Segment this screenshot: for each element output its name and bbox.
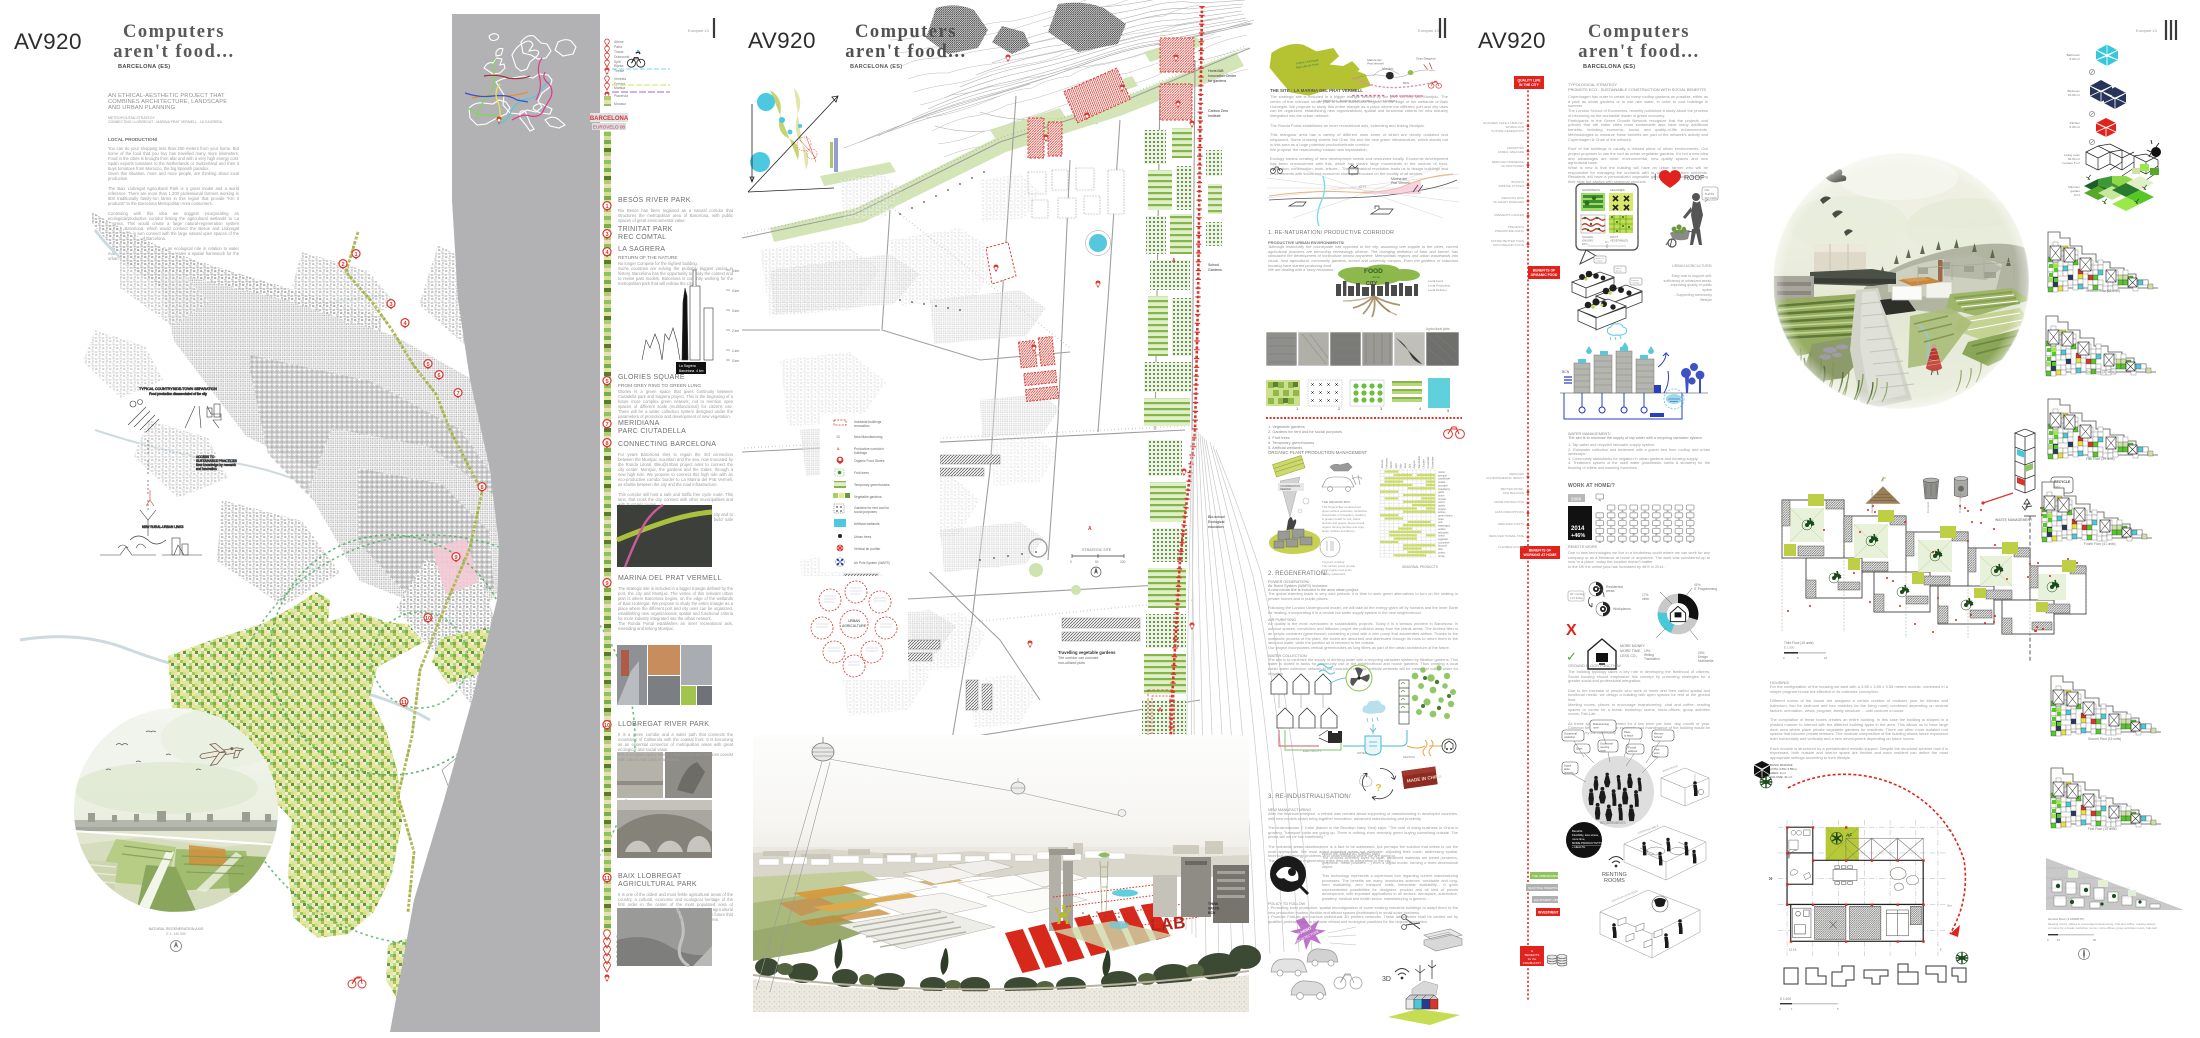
svg-text:social purposes: social purposes	[854, 510, 877, 514]
svg-text:BCN: BCN	[1562, 370, 1570, 374]
svg-text:First Floor (14 units): First Floor (14 units)	[2088, 827, 2117, 831]
svg-text:Air Puls System (WAFS): Air Puls System (WAFS)	[854, 561, 890, 565]
svg-text:HortsVAB: HortsVAB	[1208, 69, 1224, 73]
svg-text:5: 5	[1447, 408, 1450, 413]
svg-text:10: 10	[2057, 938, 2061, 942]
svg-text:50: 50	[1095, 560, 1099, 564]
svg-text:5: 5	[1797, 656, 1799, 660]
svg-text:ROOF: ROOF	[1684, 175, 1704, 182]
svg-text:0: 0	[1783, 656, 1785, 660]
svg-text:Artificial wetlands: Artificial wetlands	[854, 522, 880, 526]
svg-text:water 2x: water 2x	[1596, 257, 1605, 260]
svg-text:February: February	[1385, 457, 1389, 468]
svg-text:Formal: Formal	[1628, 746, 1636, 750]
svg-text:I: I	[1654, 172, 1657, 182]
svg-text:Agricultural plots: Agricultural plots	[1426, 327, 1450, 331]
svg-text:4: 4	[1419, 406, 1422, 411]
svg-text:4 km: 4 km	[732, 289, 739, 293]
svg-text:10: 10	[1824, 656, 1828, 660]
svg-text:OF PESTICIDES: OF PESTICIDES	[1501, 164, 1524, 168]
svg-text:REDUCED TRAVEL TIME: REDUCED TRAVEL TIME	[1489, 534, 1524, 538]
svg-text:0: 0	[1779, 1007, 1781, 1011]
svg-text:URBAN: URBAN	[848, 619, 860, 623]
svg-text:2m: 2m	[1605, 240, 1609, 244]
svg-text:ELECTRICITY: ELECTRICITY	[1303, 749, 1321, 753]
svg-text:OF HEART DISEASES: OF HEART DISEASES	[1493, 200, 1524, 204]
svg-text:CITY: CITY	[1359, 185, 1367, 189]
svg-text:STRATEGIC SITE: STRATEGIC SITE	[1082, 548, 1112, 552]
svg-text:Gardens: Gardens	[1208, 268, 1222, 272]
svg-text:100: 100	[1120, 560, 1126, 564]
svg-text:renovation: renovation	[854, 424, 870, 428]
svg-text:Third Floor (15 units): Third Floor (15 units)	[1784, 641, 1814, 645]
svg-text:Brainstorming: Brainstorming	[1593, 722, 1610, 726]
svg-text:lettuce: lettuce	[1438, 510, 1446, 514]
svg-text:Vegetable gardens: Vegetable gardens	[854, 495, 882, 499]
svg-text:AF: AF	[1845, 832, 1852, 837]
svg-text:harvest: harvest	[1632, 279, 1640, 282]
svg-text:11: 11	[604, 876, 610, 882]
svg-text:Travelling vegetable gardens: Travelling vegetable gardens	[1058, 650, 1116, 655]
svg-text:BENEFITS OF: BENEFITS OF	[1533, 269, 1555, 273]
svg-text:9 m: 9 m	[1947, 828, 1952, 832]
svg-text:INVESTMENT: INVESTMENT	[1538, 911, 1559, 915]
svg-text:monthly: monthly	[1632, 282, 1641, 285]
svg-text:LESS CO₂: LESS CO₂	[1620, 654, 1638, 658]
svg-text:Institute: Institute	[1208, 114, 1221, 118]
svg-text:2008: 2008	[1571, 497, 1582, 502]
svg-text:7: 7	[605, 422, 608, 428]
svg-text:3: 3	[1380, 406, 1383, 411]
svg-text:pumpkin: pumpkin	[1438, 483, 1448, 487]
svg-text:»: »	[1769, 874, 1773, 883]
svg-text:cauliflower: cauliflower	[1438, 477, 1450, 481]
svg-text:1: 1	[1296, 406, 1299, 411]
svg-text:2014: 2014	[1571, 526, 1585, 532]
svg-text:5.00 m²: 5.00 m²	[2070, 125, 2081, 129]
svg-text:May: May	[1398, 463, 1402, 469]
svg-text:Multimedia: Multimedia	[1698, 659, 1714, 663]
svg-text:FLEXIBLE HOURS: FLEXIBLE HOURS	[1498, 545, 1524, 549]
svg-text:October: October	[1421, 459, 1425, 468]
svg-text:2: 2	[1338, 406, 1341, 411]
svg-text:Memory: Memory	[1654, 732, 1664, 736]
svg-text:NON-ORGANIC FOOD: NON-ORGANIC FOOD	[1493, 243, 1525, 247]
svg-text:LESS DISRUPTIONS: LESS DISRUPTIONS	[1495, 510, 1524, 514]
svg-text:April: April	[1394, 463, 1398, 469]
svg-text:asparagus: asparagus	[1438, 524, 1451, 528]
svg-text:NEEDED: NEEDED	[1280, 487, 1291, 491]
svg-text:La Sagrera: La Sagrera	[679, 364, 696, 368]
svg-text:spring: spring	[1616, 270, 1623, 273]
svg-text:2 km: 2 km	[732, 329, 739, 333]
svg-text:Ecological: Ecological	[1208, 520, 1225, 524]
svg-text:IN THE CITY: IN THE CITY	[1519, 83, 1540, 87]
svg-text:WORKING AT HOME: WORKING AT HOME	[1524, 553, 1558, 557]
svg-text:turnip: turnip	[1438, 554, 1445, 558]
svg-text:Second Floor (15 units): Second Floor (15 units)	[2088, 737, 2121, 741]
svg-text:THE URBANFARMER: THE URBANFARMER	[1532, 874, 1563, 878]
svg-text:VEGETABLES: VEGETABLES	[1610, 238, 1628, 242]
svg-text:Workplaces: Workplaces	[1613, 607, 1631, 611]
svg-text:tomato: tomato	[1438, 497, 1446, 501]
svg-text:December: December	[1431, 456, 1435, 468]
svg-text:Fruit trees: Fruit trees	[854, 471, 869, 475]
svg-text:PREMATURE AGING: PREMATURE AGING	[1495, 229, 1525, 233]
svg-text:MORE TIME: MORE TIME	[1620, 649, 1641, 653]
svg-text:ETC...: ETC...	[1582, 242, 1590, 246]
svg-text:Fifth Floor (39 units): Fifth Floor (39 units)	[2086, 457, 2115, 461]
svg-text:Quiet: Quiet	[1576, 747, 1582, 751]
svg-text:5: 5	[1837, 1007, 1839, 1011]
svg-text:better nutrition and flavour.: better nutrition and flavour.	[1322, 529, 1355, 533]
svg-text:onion: onion	[1438, 493, 1445, 497]
svg-text:X: X	[1566, 622, 1577, 639]
svg-text:or rooms for a break, workshop: or rooms for a break, workshop rooms, mi…	[2048, 926, 2157, 930]
svg-text:Prat Vermell: Prat Vermell	[1391, 181, 1410, 185]
svg-text:Barcelona 4 km: Barcelona 4 km	[679, 369, 704, 373]
svg-text:Prat Vermell: Prat Vermell	[1367, 62, 1384, 66]
svg-text:Urban trees: Urban trees	[854, 535, 872, 539]
svg-text:E 1:500: E 1:500	[1784, 646, 1795, 650]
svg-text:ENVIRONMENTAL IMPACT: ENVIRONMENTAL IMPACT	[1487, 476, 1525, 480]
svg-text:MORE PRODUCTIVE: MORE PRODUCTIVE	[1494, 500, 1524, 504]
svg-text:address: address	[1628, 749, 1638, 753]
svg-text:0: 0	[1070, 560, 1072, 564]
svg-text:+ HEALTH: + HEALTH	[1572, 845, 1585, 849]
svg-text:to teach: to teach	[1624, 733, 1634, 737]
svg-text:BENEFITS OF: BENEFITS OF	[1529, 549, 1551, 553]
svg-text:Temporary greenhouses: Temporary greenhouses	[854, 483, 890, 487]
svg-text:Translation: Translation	[1644, 657, 1660, 661]
svg-text:LIFE BALANCE: LIFE BALANCE	[1503, 491, 1524, 495]
svg-text:(smush): (smush)	[1564, 770, 1574, 774]
svg-text:EQUIPMENT UPDATE: EQUIPMENT UPDATE	[1534, 898, 1565, 902]
svg-text:11.5 €/day: 11.5 €/day	[1570, 596, 1583, 600]
svg-text:9: 9	[605, 581, 608, 587]
svg-text:10: 10	[604, 723, 610, 729]
svg-text:School: School	[1654, 735, 1662, 739]
svg-text:1: 1	[605, 204, 608, 210]
svg-text:trim in: trim in	[1616, 267, 1623, 270]
svg-text:BCN: BCN	[1403, 81, 1409, 85]
svg-text:3: 3	[605, 232, 608, 238]
svg-text:a week: a week	[1596, 261, 1604, 263]
svg-text:IMMUNE SYSTEM: IMMUNE SYSTEM	[1499, 184, 1525, 188]
svg-text:Place: Place	[1624, 730, 1631, 734]
svg-text:LEGUMES: LEGUMES	[1610, 188, 1625, 192]
svg-text:12.15: 12.15	[1789, 947, 1797, 951]
svg-text:WATER: WATER	[1357, 751, 1367, 755]
svg-text:✓: ✓	[1566, 649, 1577, 664]
svg-text:leek: leek	[1438, 547, 1443, 551]
svg-text:ORGANIC FOOD: ORGANIC FOOD	[1531, 273, 1558, 277]
svg-text:eggplant: eggplant	[1438, 537, 1448, 541]
svg-text:QUALITY LIFE: QUALITY LIFE	[1517, 79, 1541, 83]
svg-text:not far: not far	[1372, 275, 1380, 279]
svg-text:E 1:100: E 1:100	[1780, 997, 1791, 1001]
svg-text:A: A	[1172, 258, 1176, 264]
svg-text:July: July	[1408, 463, 1412, 468]
svg-text:Occasional: Occasional	[1564, 732, 1577, 736]
svg-text:meeting: meeting	[1600, 745, 1610, 749]
svg-text:Space: Space	[1564, 764, 1572, 768]
svg-text:9: 9	[1940, 947, 1942, 951]
svg-text:New Manufacturing: New Manufacturing	[854, 435, 883, 439]
svg-text:THE ORGANIC BOX: THE ORGANIC BOX	[1322, 500, 1350, 504]
svg-text:AGRICULTURE: AGRICULTURE	[842, 624, 867, 628]
svg-text:March: March	[1389, 461, 1393, 469]
svg-text:FOOD: FOOD	[1364, 268, 1383, 275]
svg-text:IT-Programming: IT-Programming	[1694, 587, 1717, 591]
svg-text:3D: 3D	[836, 435, 841, 439]
svg-text:non-utilized plots: non-utilized plots	[1058, 661, 1085, 665]
svg-text:September: September	[1417, 456, 1421, 469]
svg-text:other: other	[1642, 597, 1650, 601]
svg-text:Carbon Zero: Carbon Zero	[1208, 109, 1228, 113]
svg-text:room: room	[1600, 748, 1606, 752]
svg-text:REDUCED COSTS: REDUCED COSTS	[1498, 522, 1524, 526]
svg-text:1 km: 1 km	[732, 349, 739, 353]
svg-text:Occasional: Occasional	[1600, 742, 1613, 746]
svg-text:HEATING: HEATING	[1403, 755, 1415, 759]
svg-text:The corridor can colonize: The corridor can colonize	[1058, 656, 1098, 660]
svg-text:FUTURE GENERATION: FUTURE GENERATION	[1491, 129, 1524, 133]
svg-text:Sixth Floor (37 units): Sixth Floor (37 units)	[2086, 370, 2115, 374]
svg-text:Seventh Floor (35 units): Seventh Floor (35 units)	[2086, 289, 2120, 293]
svg-text:workshop: workshop	[1564, 735, 1576, 739]
svg-text:Local Food: Local Food	[1428, 279, 1443, 283]
svg-text:education: education	[1208, 525, 1224, 529]
svg-text:tailor-: tailor-	[1564, 767, 1571, 771]
svg-text:Bio-school: Bio-school	[1208, 515, 1225, 519]
svg-text:PREVENTS CANCER: PREVENTS CANCER	[1494, 213, 1525, 217]
svg-text:artichoke: artichoke	[1438, 530, 1449, 534]
svg-text:+46%: +46%	[1571, 533, 1585, 539]
svg-text:Gran Diagonal: Gran Diagonal	[1416, 57, 1436, 61]
svg-text:COMMUNITY: COMMUNITY	[1523, 961, 1542, 965]
svg-text:August: August	[1412, 460, 1416, 468]
svg-text:0 km: 0 km	[732, 359, 739, 363]
svg-text:A: A	[1088, 526, 1092, 532]
svg-text:Innovation Center: Innovation Center	[1208, 74, 1237, 78]
svg-text:Local Delivery: Local Delivery	[1428, 288, 1447, 292]
svg-text:10.00 m²: 10.00 m²	[2068, 93, 2080, 97]
svg-text:?: ?	[1375, 783, 1381, 794]
svg-text:3D: 3D	[1382, 976, 1391, 983]
svg-text:/ terrace 5 m²: / terrace 5 m²	[2062, 161, 2080, 165]
svg-text:Ground Floor (1:1000/0.57): Ground Floor (1:1000/0.57)	[2048, 917, 2084, 921]
svg-text:SEX(TING) SMARTPHONE: SEX(TING) SMARTPHONE	[1528, 886, 1565, 890]
svg-text:November: November	[1426, 456, 1430, 468]
svg-text:for gardens: for gardens	[1208, 79, 1226, 83]
svg-text:GRAMINEAS: GRAMINEAS	[1582, 188, 1600, 192]
svg-text:celery: celery	[1438, 550, 1446, 554]
svg-text:3 m: 3 m	[1947, 903, 1952, 907]
svg-text:5 km: 5 km	[732, 269, 739, 273]
svg-text:ANIMAL WELFARE: ANIMAL WELFARE	[1498, 150, 1524, 154]
svg-text:June: June	[1403, 462, 1407, 468]
svg-text:1: 1	[1791, 1007, 1793, 1011]
svg-text:spinach: spinach	[1438, 473, 1447, 477]
svg-text:9 m²: 9 m²	[2074, 193, 2080, 197]
svg-text:5.00 m²: 5.00 m²	[2070, 57, 2081, 61]
svg-text:buildings: buildings	[854, 451, 867, 455]
svg-text:School: School	[1208, 263, 1219, 267]
svg-text:room: room	[1593, 725, 1599, 729]
svg-text:Organic Food Stores: Organic Food Stores	[854, 459, 885, 463]
svg-text:Montjuic: Montjuic	[1382, 67, 1394, 71]
svg-text:5: 5	[605, 379, 608, 385]
svg-text:radish: radish	[1438, 504, 1446, 508]
svg-text:50: 50	[2093, 938, 2097, 942]
svg-text:SEASONAL PRODUCTS: SEASONAL PRODUCTS	[1402, 565, 1438, 569]
svg-text:Vertical air purifier: Vertical air purifier	[854, 547, 881, 551]
svg-text:0: 0	[2047, 938, 2049, 942]
svg-text:January: January	[1380, 459, 1384, 469]
svg-text:SO CHIC: SO CHIC	[1705, 196, 1718, 200]
svg-text:Local Production: Local Production	[1428, 284, 1451, 288]
svg-text:3 km: 3 km	[732, 309, 739, 313]
svg-text:areas: areas	[1606, 589, 1615, 593]
svg-text:8: 8	[605, 441, 608, 447]
